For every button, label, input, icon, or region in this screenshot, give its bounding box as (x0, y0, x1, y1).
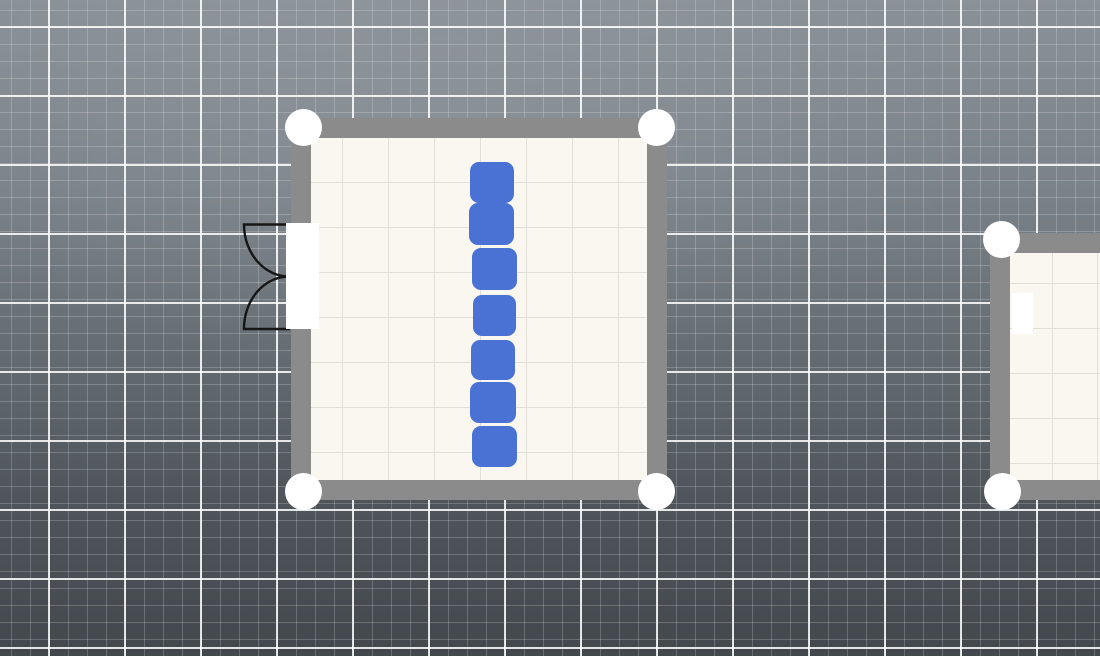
corner-handle[interactable] (984, 473, 1021, 510)
corner-handle[interactable] (285, 109, 322, 146)
furniture-item[interactable] (473, 295, 516, 336)
furniture-item[interactable] (469, 203, 514, 245)
corner-handle[interactable] (638, 473, 675, 510)
furniture-item[interactable] (472, 248, 517, 290)
furniture-item[interactable] (471, 340, 515, 380)
furniture-item[interactable] (472, 426, 517, 467)
room-partial-room-right[interactable] (990, 233, 1100, 500)
door-opening[interactable] (286, 223, 319, 329)
room-floor (1010, 253, 1100, 480)
corner-handle[interactable] (285, 473, 322, 510)
door-opening[interactable] (1012, 293, 1033, 334)
floorplan-canvas[interactable] (0, 0, 1100, 656)
furniture-item[interactable] (470, 162, 514, 203)
corner-handle[interactable] (983, 221, 1020, 258)
furniture-item[interactable] (470, 382, 516, 423)
corner-handle[interactable] (638, 109, 675, 146)
